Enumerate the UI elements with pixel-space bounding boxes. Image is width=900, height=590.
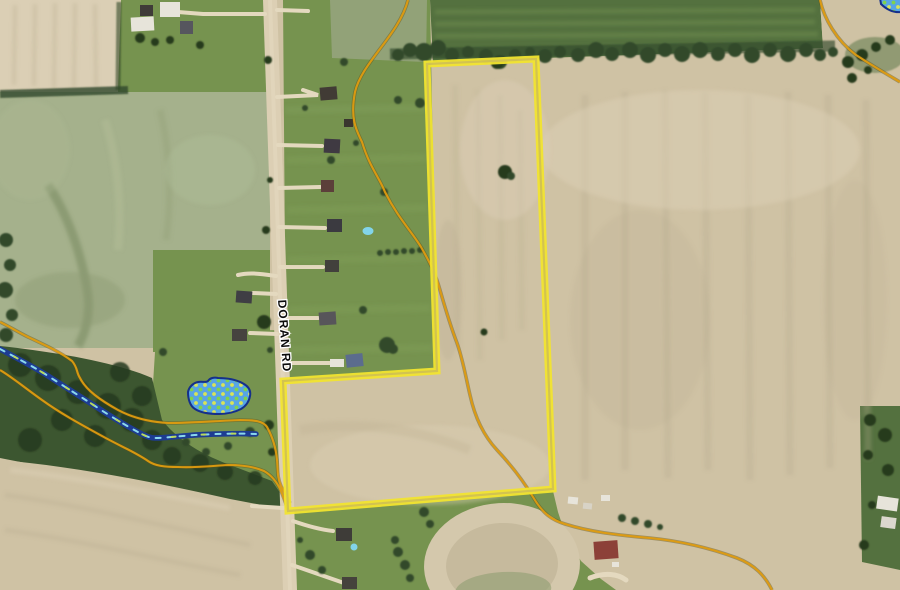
aerial-map-viewport[interactable]: DORAN RD xyxy=(0,0,900,590)
aerial-map-canvas[interactable]: DORAN RD xyxy=(0,0,900,590)
